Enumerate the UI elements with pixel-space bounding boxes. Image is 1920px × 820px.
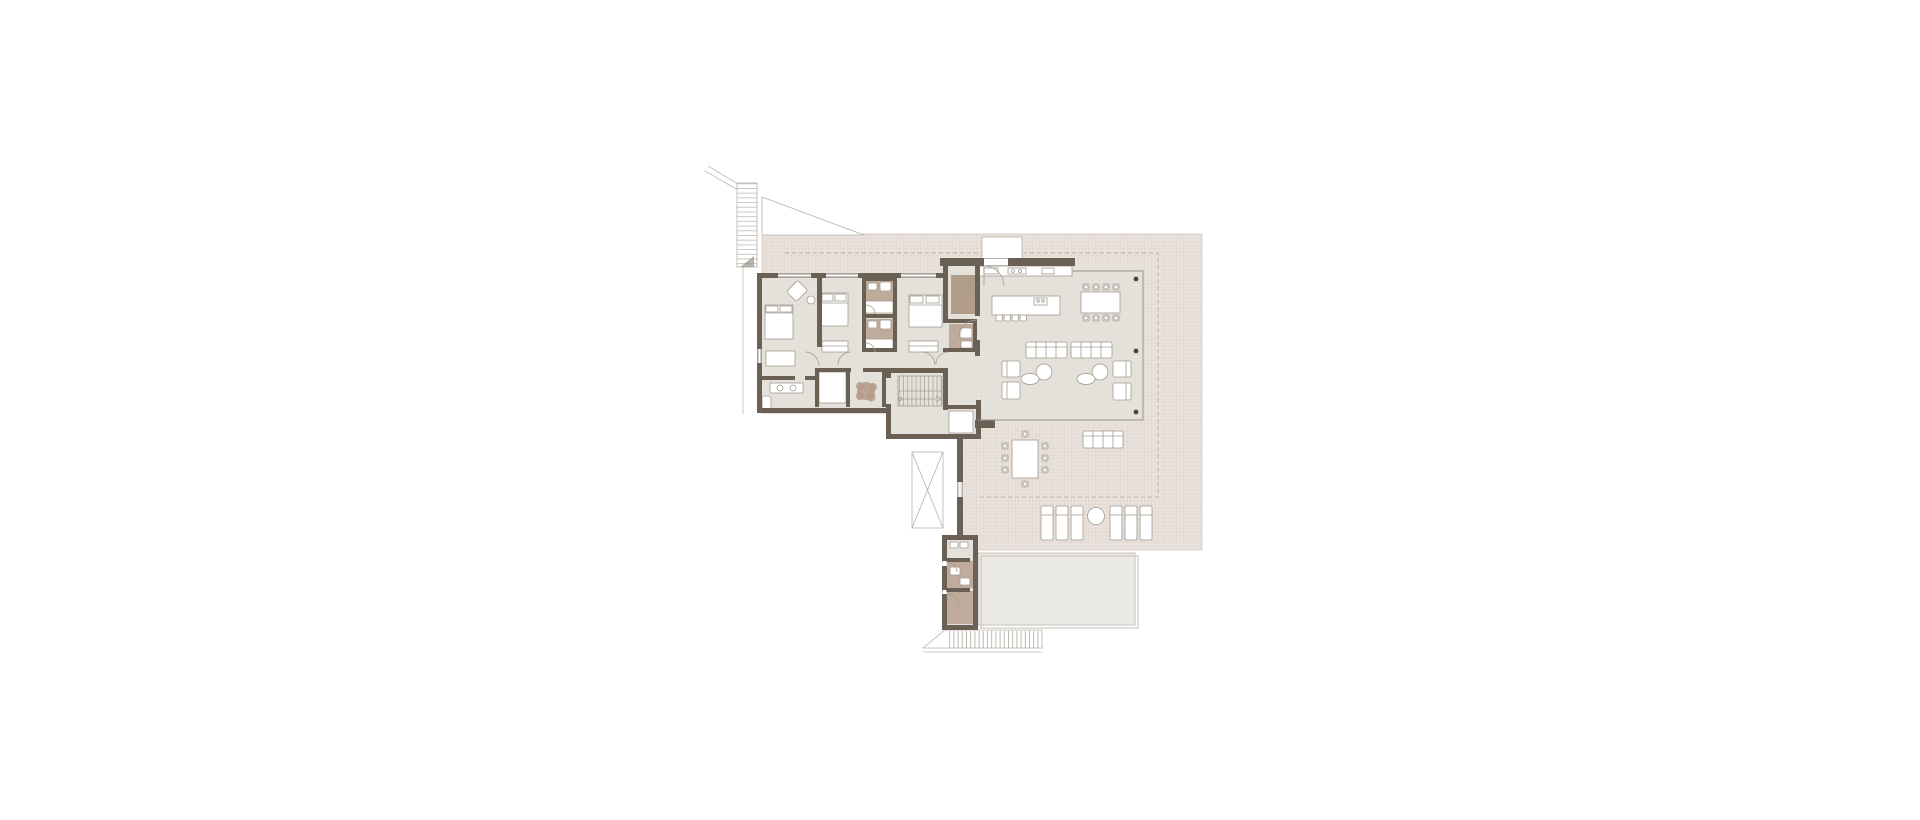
appliance	[1042, 268, 1054, 274]
floor-plan	[0, 0, 1920, 820]
roof-edge-triangle	[762, 197, 864, 235]
bar-stool	[1004, 315, 1011, 321]
window	[758, 349, 762, 363]
sun-lounger	[1140, 506, 1152, 540]
sofa	[1071, 342, 1112, 358]
bar-stool	[996, 315, 1003, 321]
side-table	[807, 296, 815, 304]
exterior-stair-northwest	[737, 183, 757, 267]
armchair	[1113, 383, 1131, 400]
washbasin	[961, 341, 972, 348]
elevator	[949, 411, 973, 433]
dining-table	[1081, 292, 1120, 313]
bar-stool	[1012, 315, 1019, 321]
wc	[880, 282, 891, 291]
skylight	[912, 452, 943, 528]
wc	[762, 396, 771, 409]
armchair	[1002, 361, 1020, 377]
armchair	[1113, 361, 1131, 377]
wc	[960, 328, 972, 338]
sun-lounger	[1110, 506, 1122, 540]
bar-stool	[1020, 315, 1027, 321]
side-table	[1088, 508, 1105, 525]
window	[901, 274, 936, 278]
coffee-table	[1077, 374, 1095, 385]
armchair	[1002, 382, 1020, 399]
wc	[880, 320, 891, 329]
dresser	[766, 351, 795, 366]
washbasin	[960, 578, 970, 585]
column	[1134, 410, 1139, 415]
sun-lounger	[1056, 506, 1068, 540]
column	[1134, 349, 1139, 354]
window	[778, 274, 811, 278]
coffee-table	[1021, 374, 1039, 385]
sink	[984, 268, 998, 274]
wardrobe	[909, 341, 938, 352]
washbasin	[868, 283, 877, 290]
wardrobe	[822, 341, 848, 352]
entry-walkway	[982, 237, 1022, 259]
window	[958, 482, 963, 497]
sofa	[1026, 342, 1067, 358]
hallway-plant	[856, 382, 877, 402]
kitchen-island	[992, 296, 1060, 315]
dressing-room-shelves	[819, 372, 846, 403]
window	[826, 274, 858, 278]
double-vanity	[770, 383, 803, 393]
column	[1134, 277, 1139, 282]
bedroom-2	[821, 293, 848, 352]
page-canvas	[0, 0, 1920, 820]
cooktop	[1008, 268, 1026, 274]
guest-wc	[960, 328, 972, 348]
pool	[978, 553, 1138, 628]
bedroom-3	[909, 295, 942, 352]
sun-lounger	[1041, 506, 1053, 540]
sun-lounger	[1071, 506, 1083, 540]
washbasin	[868, 321, 877, 328]
bathtub	[865, 301, 893, 313]
wc	[950, 567, 960, 575]
outdoor-dining-table	[1012, 440, 1038, 478]
sun-lounger	[1125, 506, 1137, 540]
